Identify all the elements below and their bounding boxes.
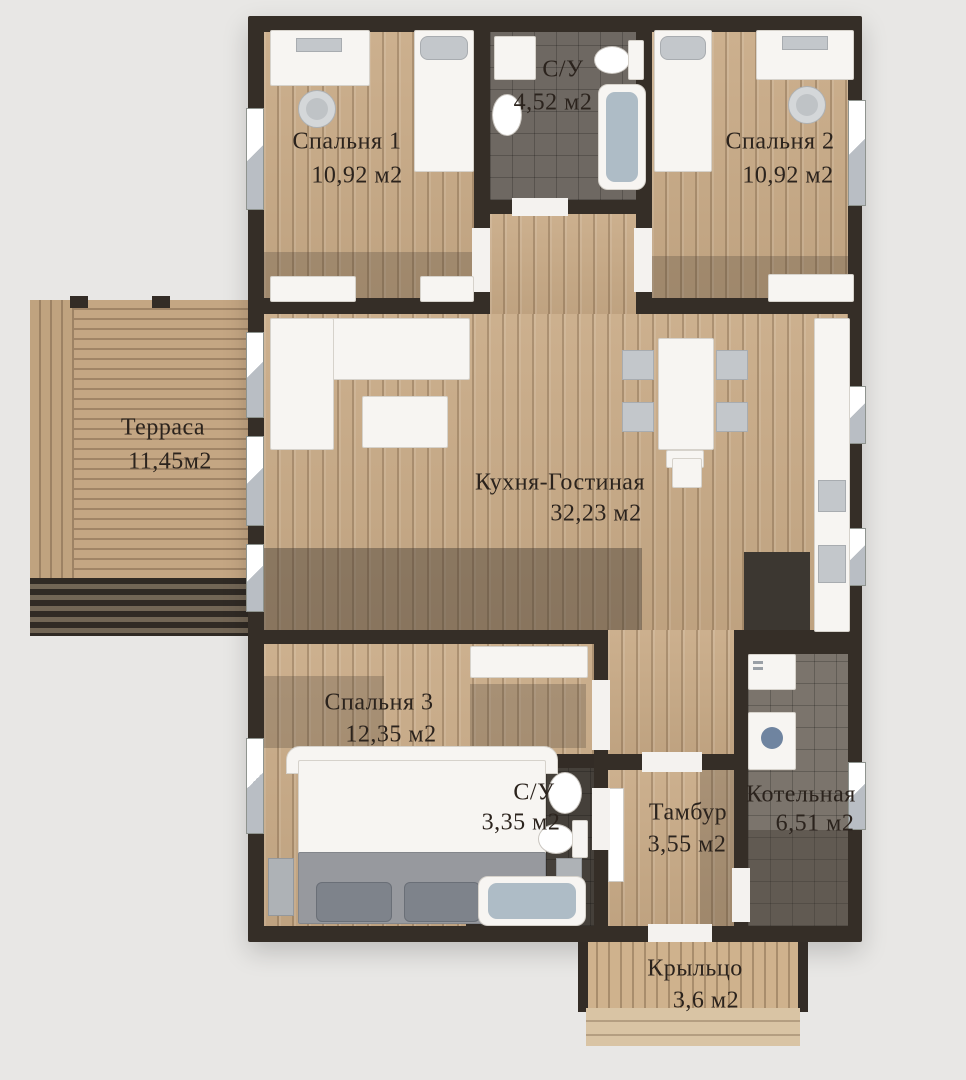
washing-machine-icon <box>748 654 796 690</box>
window-living-left-2 <box>246 436 264 526</box>
dresser <box>420 276 474 302</box>
door-bathroom2 <box>592 788 610 850</box>
terrace-post <box>152 296 170 308</box>
rug-living <box>264 548 642 630</box>
window-living-right-1 <box>848 386 866 444</box>
window-bedroom1-left <box>246 108 264 210</box>
wardrobe <box>768 274 854 302</box>
window-bedroom3-left <box>246 738 264 834</box>
porch-edge-left <box>578 942 588 1012</box>
room-label-terrace-area: 11,45м2 <box>128 449 212 476</box>
pillow <box>660 36 706 60</box>
kitchen-counter <box>814 318 850 632</box>
door-bathroom1 <box>512 198 568 216</box>
nightstand <box>268 858 294 916</box>
kitchen-sink-icon <box>818 545 846 583</box>
door-bedroom2 <box>634 228 652 292</box>
window-living-right-2 <box>848 528 866 586</box>
room-label-bedroom3-area: 12,35 м2 <box>345 722 436 749</box>
terrace-post <box>70 296 88 308</box>
terrace-stairs <box>30 578 256 636</box>
corridor <box>608 630 734 754</box>
door-entry <box>648 924 712 944</box>
sofa-chaise <box>270 318 334 450</box>
dining-chair <box>622 350 654 380</box>
toilet-icon <box>594 46 630 74</box>
monitor <box>782 36 828 50</box>
stove-icon <box>818 480 846 512</box>
room-label-bedroom1-name: Спальня 1 <box>292 129 401 156</box>
boiler-icon <box>748 712 796 770</box>
room-label-bathroom2-name: С/У <box>513 780 554 807</box>
door-boiler <box>732 868 750 922</box>
kitchen-island <box>744 552 810 630</box>
porch-edge-right <box>798 942 808 1012</box>
room-label-boiler-name: Котельная <box>746 782 856 809</box>
room-label-terrace-name: Терраса <box>121 415 205 442</box>
rug-bedroom3-nook <box>470 684 586 748</box>
boiler-floor-dark <box>748 830 848 926</box>
dining-chair <box>716 350 748 380</box>
door-bedroom3 <box>592 680 610 750</box>
coffee-table <box>362 396 448 448</box>
wardrobe <box>270 276 356 302</box>
toilet-tank <box>572 820 588 858</box>
room-label-vestibule-area: 3,55 м2 <box>648 832 727 859</box>
dining-chair <box>716 402 748 432</box>
window-living-left-3 <box>246 544 264 612</box>
pillow <box>420 36 468 60</box>
side-table <box>672 458 702 488</box>
window-bedroom2-right <box>848 100 866 206</box>
door-bathroom2-leaf <box>608 788 624 882</box>
pillow <box>316 882 392 922</box>
room-label-bedroom1-area: 10,92 м2 <box>311 163 402 190</box>
monitor <box>296 38 342 52</box>
shower-icon <box>494 36 536 80</box>
office-chair <box>298 90 336 128</box>
bathtub-icon <box>478 876 586 926</box>
room-label-porch-area: 3,6 м2 <box>673 988 739 1015</box>
room-label-bedroom2-area: 10,92 м2 <box>742 163 833 190</box>
room-label-bedroom2-name: Спальня 2 <box>725 129 834 156</box>
bathtub-icon <box>598 84 646 190</box>
door-vestibule <box>642 752 702 772</box>
room-label-bathroom1-name: С/У <box>542 57 583 84</box>
wardrobe <box>470 646 588 678</box>
terrace-side-strip <box>30 300 74 578</box>
room-label-living-area: 32,23 м2 <box>550 501 641 528</box>
dining-table <box>658 338 714 450</box>
floor-plan: { "plan": { "rooms": [ { "id": "bedroom1… <box>0 0 966 1080</box>
window-living-left-1 <box>246 332 264 418</box>
pillow <box>404 882 480 922</box>
hallway-top <box>490 214 636 314</box>
room-label-porch-name: Крыльцо <box>647 956 742 983</box>
room-label-bathroom1-area: 4,52 м2 <box>514 90 593 117</box>
office-chair <box>788 86 826 124</box>
room-label-vestibule-name: Тамбур <box>649 800 727 827</box>
room-label-boiler-area: 6,51 м2 <box>776 811 855 838</box>
room-label-bathroom2-area: 3,35 м2 <box>482 810 561 837</box>
toilet-tank <box>628 40 644 80</box>
door-bedroom1 <box>472 228 490 292</box>
dining-chair <box>622 402 654 432</box>
room-label-living-name: Кухня-Гостиная <box>475 470 645 497</box>
room-label-bedroom3-name: Спальня 3 <box>324 690 433 717</box>
